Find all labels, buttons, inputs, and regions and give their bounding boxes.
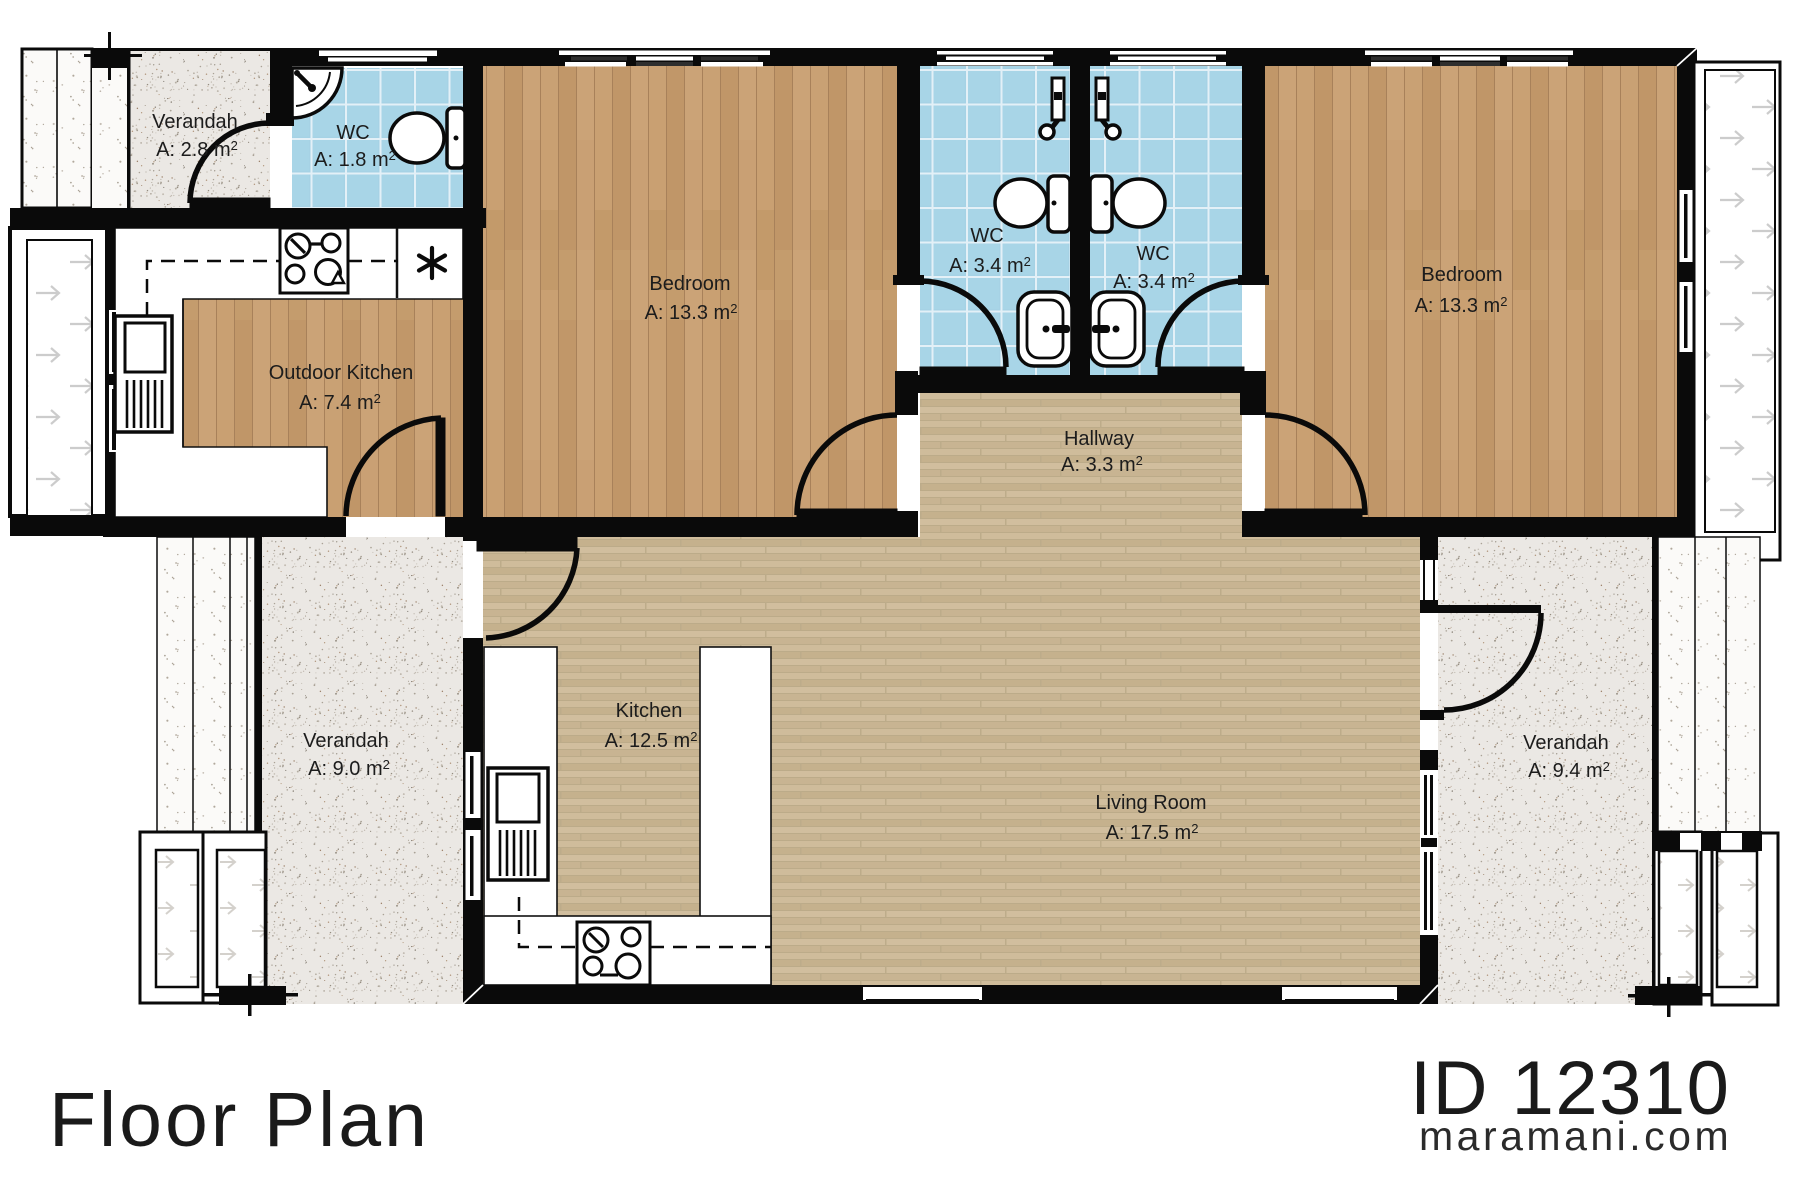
svg-text:A: 3.3 m2: A: 3.3 m2 bbox=[1061, 453, 1143, 476]
svg-text:A: 9.0 m2: A: 9.0 m2 bbox=[308, 757, 390, 780]
svg-text:Outdoor Kitchen: Outdoor Kitchen bbox=[269, 362, 414, 384]
svg-text:Bedroom: Bedroom bbox=[649, 273, 730, 295]
svg-text:maramani.com: maramani.com bbox=[1419, 1113, 1732, 1159]
svg-text:Hallway: Hallway bbox=[1064, 428, 1134, 450]
svg-text:A: 3.4 m2: A: 3.4 m2 bbox=[1113, 270, 1195, 293]
svg-text:WC: WC bbox=[1136, 243, 1169, 265]
svg-text:A: 2.8 m2: A: 2.8 m2 bbox=[156, 138, 238, 161]
svg-text:Floor Plan: Floor Plan bbox=[49, 1077, 430, 1163]
svg-text:A: 12.5 m2: A: 12.5 m2 bbox=[605, 729, 698, 752]
svg-text:A: 9.4 m2: A: 9.4 m2 bbox=[1528, 759, 1610, 782]
svg-text:Bedroom: Bedroom bbox=[1421, 264, 1502, 286]
svg-text:A: 3.4 m2: A: 3.4 m2 bbox=[949, 254, 1031, 277]
svg-text:A: 17.5 m2: A: 17.5 m2 bbox=[1106, 821, 1199, 844]
svg-text:Verandah: Verandah bbox=[1523, 732, 1609, 754]
svg-text:Kitchen: Kitchen bbox=[616, 700, 683, 722]
svg-text:A: 13.3 m2: A: 13.3 m2 bbox=[1415, 294, 1508, 317]
svg-text:WC: WC bbox=[970, 225, 1003, 247]
svg-text:Verandah: Verandah bbox=[152, 111, 238, 133]
svg-text:Verandah: Verandah bbox=[303, 730, 389, 752]
svg-text:A: 7.4 m2: A: 7.4 m2 bbox=[299, 391, 381, 414]
svg-text:A: 1.8 m2: A: 1.8 m2 bbox=[314, 148, 396, 171]
svg-text:Living Room: Living Room bbox=[1095, 792, 1206, 814]
svg-text:A: 13.3 m2: A: 13.3 m2 bbox=[645, 301, 738, 324]
svg-text:WC: WC bbox=[336, 122, 369, 144]
